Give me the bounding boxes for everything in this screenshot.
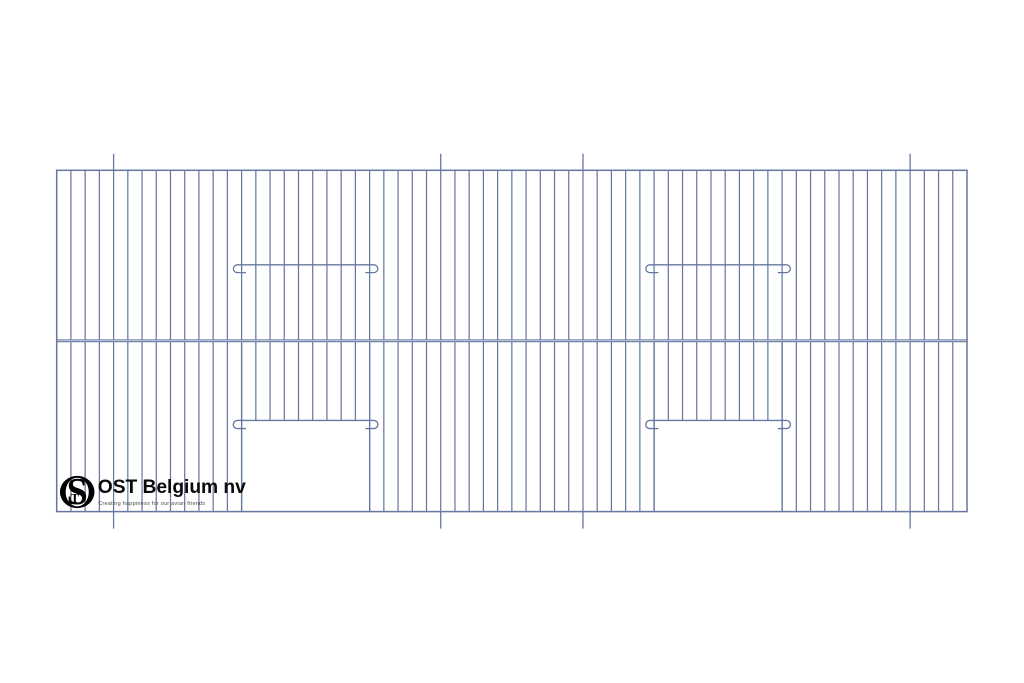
svg-text:T: T [70, 491, 79, 506]
svg-text:Creating happiness for our avi: Creating happiness for our avian friends [98, 501, 205, 507]
svg-text:OST Belgium nv: OST Belgium nv [98, 477, 246, 498]
